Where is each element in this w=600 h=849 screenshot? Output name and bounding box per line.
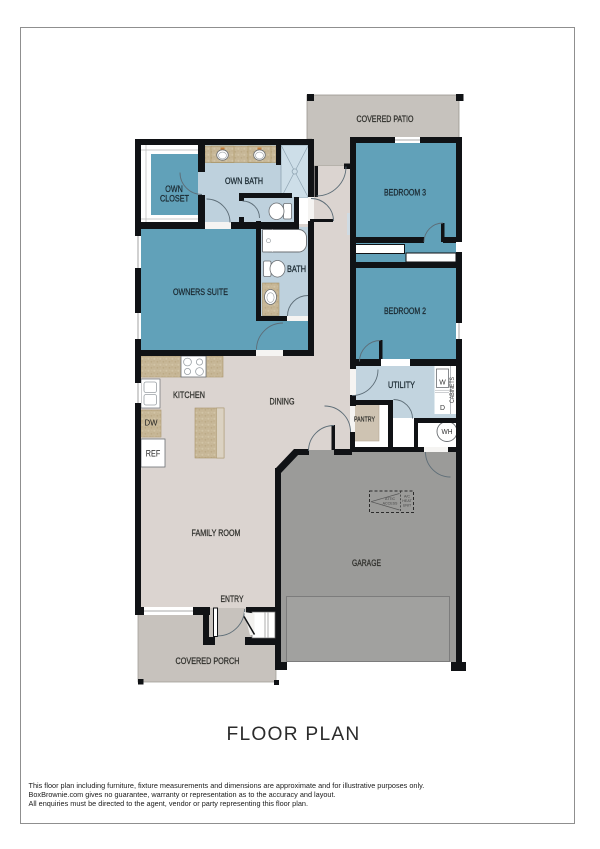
svg-text:D: D [440, 403, 446, 412]
svg-text:All enquiries must be directed: All enquiries must be directed to the ag… [29, 799, 308, 808]
svg-text:BATH: BATH [287, 264, 306, 275]
svg-text:COVERED PATIO: COVERED PATIO [357, 114, 414, 125]
svg-text:UNIT: UNIT [403, 504, 412, 508]
svg-text:HEAT: HEAT [402, 499, 412, 503]
svg-text:FAMILY ROOM: FAMILY ROOM [192, 528, 241, 539]
svg-text:CLOSET: CLOSET [160, 194, 189, 205]
svg-text:KITCHEN: KITCHEN [173, 390, 205, 401]
svg-text:This floor plan including furn: This floor plan including furniture, fix… [29, 781, 425, 790]
svg-text:BEDROOM 3: BEDROOM 3 [384, 188, 426, 199]
svg-text:WH: WH [442, 427, 453, 436]
svg-text:OWNERS SUITE: OWNERS SUITE [173, 287, 228, 298]
svg-text:ATTIC: ATTIC [385, 497, 396, 501]
svg-text:A/C: A/C [404, 495, 410, 499]
svg-text:REF: REF [146, 449, 161, 459]
svg-text:CABINETS: CABINETS [449, 377, 456, 403]
svg-text:ACCESS: ACCESS [383, 502, 398, 506]
svg-text:BEDROOM 2: BEDROOM 2 [384, 306, 426, 317]
svg-text:GARAGE: GARAGE [352, 558, 381, 569]
svg-text:UTILITY: UTILITY [388, 380, 415, 391]
svg-text:DW: DW [145, 418, 159, 428]
svg-text:BoxBrownie.com gives no guaran: BoxBrownie.com gives no guarantee, warra… [29, 790, 336, 799]
svg-text:FLOOR PLAN: FLOOR PLAN [226, 724, 360, 745]
svg-text:PANTRY: PANTRY [354, 415, 375, 424]
svg-text:ENTRY: ENTRY [221, 594, 244, 605]
svg-text:OWN BATH: OWN BATH [225, 176, 263, 187]
svg-text:COVERED PORCH: COVERED PORCH [176, 656, 240, 667]
svg-text:W: W [439, 378, 446, 387]
svg-text:DINING: DINING [270, 397, 295, 408]
